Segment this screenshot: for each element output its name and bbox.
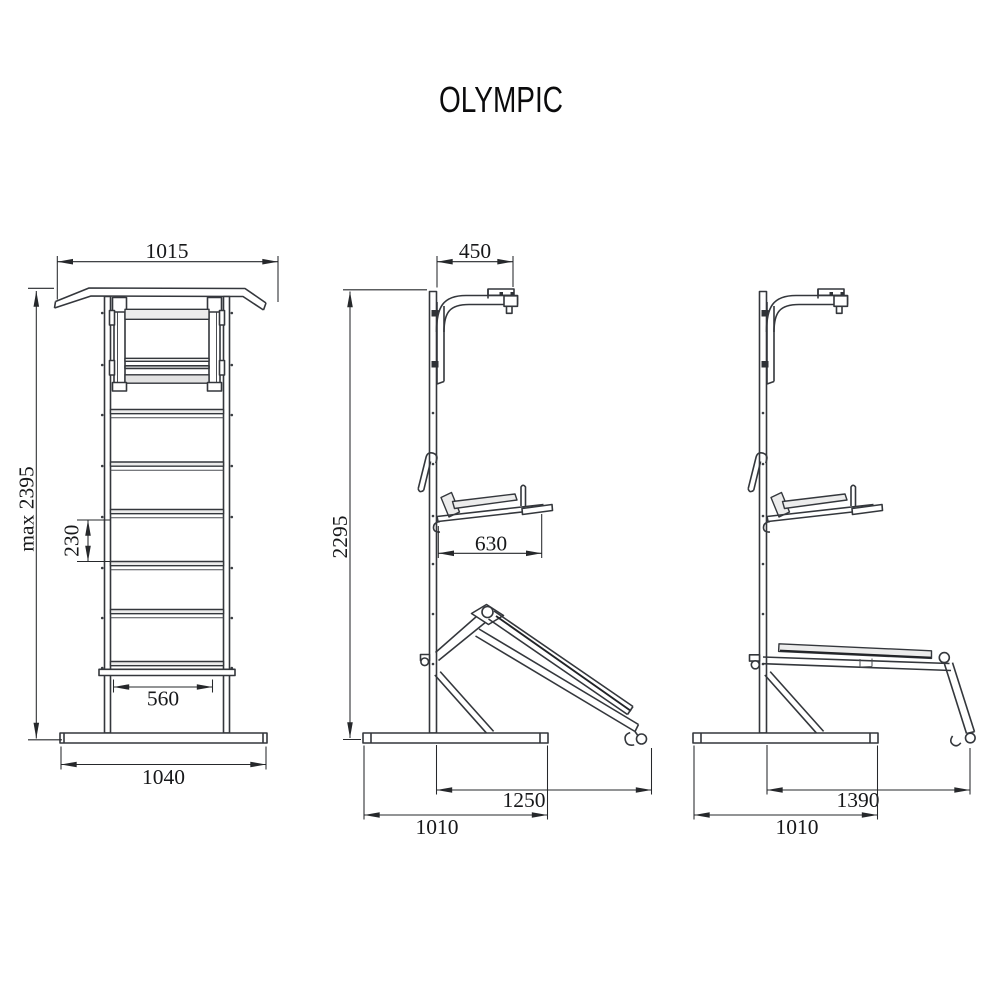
dim-front-max-height: max 2395 [15,466,39,551]
dim-side1-arm-depth: 450 [459,239,491,263]
side1-dimensions: 450 2295 630 1250 [328,239,652,839]
dim-side1-base-depth: 1010 [416,815,459,839]
side1-base [363,672,548,743]
bench-end-roller [939,653,949,663]
bench-foot-roller [637,734,647,744]
post [430,292,437,734]
leg-foot-hook [951,736,961,746]
bench-top-roller [482,607,493,618]
pullup-arm [432,289,518,384]
side2-base [693,672,878,743]
bench-pivot [751,661,759,669]
top-bar-inner [55,296,264,310]
dim-side2-base-depth: 1010 [776,815,819,839]
pullup-arm [762,289,848,384]
seat-handle [521,485,526,506]
front-base [60,733,267,743]
technical-drawing: OLYMPIC [0,0,1000,1000]
seat-handle [851,485,856,506]
lower-crossbar-1 [125,358,209,361]
clamp-block [834,296,848,307]
page-title: OLYMPIC [439,79,563,120]
side2-dimensions: 1390 1010 [694,745,970,839]
dim-front-rung-spacing: 230 [60,525,84,557]
seat-pad [783,494,848,509]
carriage [110,298,225,392]
dim-side1-seat-depth: 630 [475,532,507,556]
bench-pivot [421,658,429,666]
lower-crossbar-2 [125,375,209,383]
clamp-block [504,296,518,307]
rungs [111,410,224,670]
leg-foot-roller [966,733,976,743]
fold-out-seat [764,485,883,532]
drawing-page: OLYMPIC [0,0,1000,1000]
fold-out-seat [434,485,553,532]
dim-front-inner-width: 560 [147,687,179,711]
front-view: 1015 max 2395 230 560 [15,239,279,789]
dim-side1-bench-reach: 1250 [503,788,546,812]
dim-side1-height: 2295 [328,516,352,559]
post [760,292,767,734]
dim-front-base-width: 1040 [142,765,185,789]
incline-bench [421,605,647,746]
seat-pad [453,494,518,509]
dim-side2-bench-reach: 1390 [837,788,880,812]
side-view-bench-raised: 1390 1010 [693,289,975,839]
dim-front-top-width: 1015 [146,239,189,263]
side-view-bench-lowered: 450 2295 630 1250 [328,239,652,839]
bottom-crossmember [99,669,235,675]
upper-crossbar [125,309,209,319]
bench-foot-hook [625,733,634,746]
